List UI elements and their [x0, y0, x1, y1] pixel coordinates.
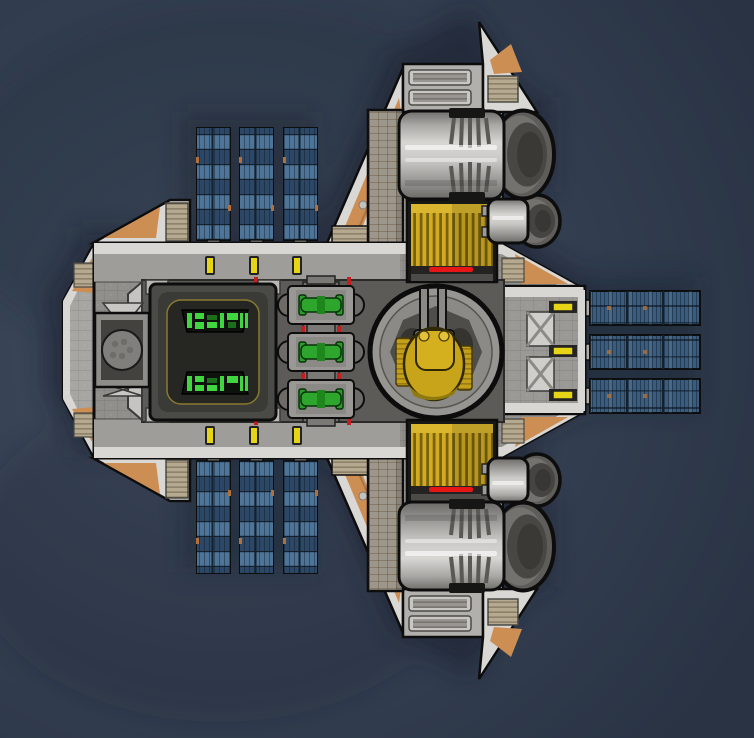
panel-tick	[239, 157, 242, 163]
coupler-light-red	[301, 373, 305, 379]
airlock[interactable]	[95, 303, 149, 396]
conduit-module[interactable]	[278, 380, 364, 418]
hull-light	[206, 427, 214, 444]
power-conduits[interactable]	[278, 276, 364, 426]
hatch-texture	[119, 353, 125, 359]
display-segment	[227, 376, 238, 383]
display-segment	[195, 322, 204, 329]
display-segment-dim	[207, 315, 217, 320]
conduit-endcap	[307, 276, 335, 284]
core-display-bottom	[182, 372, 248, 394]
display-segment-dim	[228, 322, 236, 328]
panel-divider	[662, 379, 664, 413]
hull-strip-top	[94, 254, 400, 282]
nozzle-core	[517, 132, 543, 178]
display-segment-dim	[207, 378, 217, 383]
hull-strip-bottom	[94, 419, 400, 447]
display-segment	[195, 385, 204, 391]
cross-brace	[527, 357, 554, 391]
conduit-module[interactable]	[278, 286, 364, 324]
panel-divider	[212, 128, 214, 240]
panel-divider	[626, 291, 628, 325]
hull-light	[206, 257, 214, 274]
body-shade	[405, 180, 497, 186]
red-marker	[347, 277, 351, 285]
conduit-endcap	[307, 418, 335, 426]
hull-light	[293, 257, 301, 274]
panel-tick	[643, 350, 647, 354]
turret-knob	[419, 331, 429, 341]
cross-brace	[527, 312, 554, 346]
panel-tick	[228, 205, 231, 211]
panel-tick	[607, 394, 611, 398]
airlock-bevel-top	[103, 303, 143, 313]
solar-array-bottom[interactable]	[196, 453, 318, 573]
display-segment	[207, 385, 217, 391]
display-segment	[245, 376, 248, 391]
coupler-light-red	[301, 326, 305, 332]
display-segment	[240, 376, 243, 391]
cargo-base	[411, 274, 493, 281]
display-segment	[195, 313, 204, 319]
vent-slat-lines	[413, 73, 467, 82]
panel-divider	[255, 128, 257, 240]
hatch-texture	[127, 347, 133, 353]
display-segment	[240, 313, 243, 328]
solar-array-top[interactable]	[196, 128, 318, 248]
body-highlight	[405, 145, 497, 150]
engine-large-top[interactable]	[399, 108, 554, 202]
panel-tick	[643, 394, 647, 398]
wing-rivet	[359, 201, 367, 209]
wedge-vent-slats	[166, 203, 188, 241]
panel-tick	[643, 306, 647, 310]
body-highlight	[492, 216, 524, 220]
panel-divider	[626, 379, 628, 413]
panel-divider	[662, 291, 664, 325]
panel-tick	[315, 205, 318, 211]
stern-vent-slats	[502, 258, 524, 282]
stern-bevel-top	[500, 287, 583, 297]
hull-light	[250, 257, 258, 274]
display-segment	[220, 313, 224, 328]
turret-knob	[439, 331, 449, 341]
game-viewport	[0, 0, 754, 738]
hull-light	[553, 303, 573, 311]
engine-notch	[449, 108, 485, 118]
hull-light	[553, 391, 573, 399]
coupler-light-red	[337, 373, 341, 379]
coupler-light-red	[337, 326, 341, 332]
panel-tick	[196, 157, 199, 163]
display-segment	[187, 376, 192, 391]
solar-panel[interactable]	[283, 128, 318, 248]
hull-light	[553, 347, 573, 355]
solar-array-right[interactable]	[578, 291, 700, 413]
solar-panel[interactable]	[578, 291, 700, 325]
stern-vent-slats	[502, 419, 524, 443]
vent-slat-lines	[413, 93, 467, 102]
panel-divider	[662, 335, 664, 369]
gun-turret[interactable]	[370, 286, 502, 418]
engine-notch	[449, 192, 485, 202]
hatch-texture	[121, 339, 127, 345]
hull-light	[293, 427, 301, 444]
capsule-band	[317, 343, 325, 361]
nose-vent-slats	[74, 413, 93, 437]
airlock-hatch[interactable]	[102, 330, 142, 370]
computer-core[interactable]	[146, 280, 280, 422]
ship-canvas	[0, 0, 754, 738]
display-segment	[220, 376, 224, 391]
panel-divider	[626, 335, 628, 369]
capsule-band	[317, 296, 325, 314]
capsule-band	[317, 390, 325, 408]
body-highlight	[405, 158, 497, 162]
nose-vent-slats	[74, 263, 93, 287]
stern-bevel-right	[578, 290, 585, 411]
display-segment	[195, 376, 204, 382]
display-segment	[187, 313, 192, 328]
panel-tick	[271, 205, 274, 211]
panel-divider	[299, 128, 301, 240]
hull-light	[250, 427, 258, 444]
engine-small-top[interactable]	[482, 195, 560, 247]
display-segment	[207, 322, 217, 328]
display-segment	[227, 313, 238, 320]
hatch-texture	[112, 341, 118, 347]
apex-vent-slats	[488, 76, 518, 102]
display-segment	[245, 313, 248, 328]
hatch-texture	[110, 352, 116, 358]
stern-block	[498, 286, 585, 414]
panel-tick	[607, 350, 611, 354]
small-engine-body	[488, 199, 528, 243]
panel-tick	[283, 157, 286, 163]
cargo-red-indicator	[429, 267, 473, 272]
solar-panel[interactable]	[578, 379, 700, 413]
panel-tick	[607, 306, 611, 310]
solar-panel[interactable]	[578, 335, 700, 369]
solar-panel[interactable]	[239, 128, 274, 248]
stern-bevel-bottom	[500, 403, 583, 413]
conduit-module[interactable]	[278, 333, 364, 371]
nose-bevel-front	[63, 301, 70, 399]
solar-panel[interactable]	[196, 128, 231, 248]
core-display-top	[182, 310, 248, 332]
small-nozzle-core	[535, 210, 551, 232]
